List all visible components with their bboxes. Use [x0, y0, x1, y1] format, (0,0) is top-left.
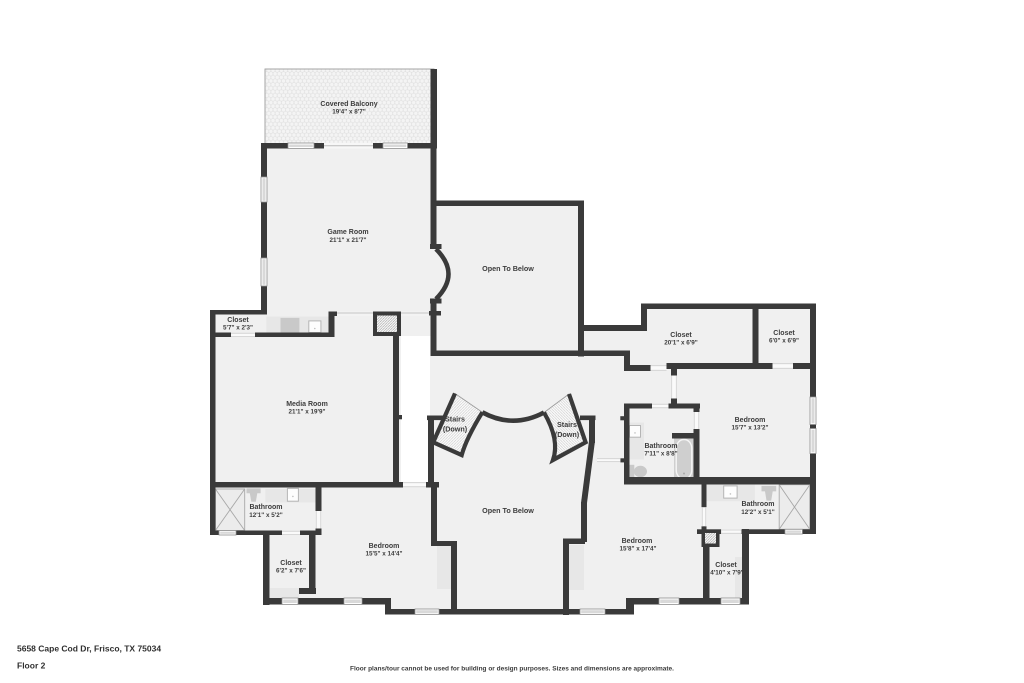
svg-text:12'2" x 5'1": 12'2" x 5'1" — [741, 509, 774, 516]
svg-text:Bathroom: Bathroom — [741, 501, 774, 508]
svg-text:15'8" x 17'4": 15'8" x 17'4" — [620, 546, 657, 553]
svg-text:Closet: Closet — [227, 317, 249, 324]
svg-text:Bedroom: Bedroom — [735, 417, 766, 424]
svg-text:15'5" x 14'4": 15'5" x 14'4" — [366, 551, 403, 558]
svg-text:Media Room: Media Room — [286, 401, 328, 408]
svg-text:Closet: Closet — [773, 330, 795, 337]
svg-text:Bedroom: Bedroom — [622, 538, 653, 545]
svg-text:Bedroom: Bedroom — [369, 543, 400, 550]
svg-text:5'7" x 2'3": 5'7" x 2'3" — [223, 325, 253, 332]
svg-text:Bathroom: Bathroom — [644, 443, 677, 450]
svg-text:6'2" x 7'6": 6'2" x 7'6" — [276, 568, 306, 575]
svg-text:Open To Below: Open To Below — [482, 506, 534, 515]
svg-text:Stairs: Stairs — [445, 415, 465, 424]
svg-text:Open To Below: Open To Below — [482, 264, 534, 273]
svg-text:12'1" x 5'2": 12'1" x 5'2" — [249, 512, 282, 519]
svg-text:Game Room: Game Room — [327, 229, 368, 236]
svg-text:5658 Cape Cod Dr, Frisco, TX 7: 5658 Cape Cod Dr, Frisco, TX 75034 — [17, 644, 161, 654]
svg-text:(Down): (Down) — [555, 430, 580, 439]
svg-text:Floor 2: Floor 2 — [17, 661, 46, 671]
svg-text:Covered Balcony: Covered Balcony — [320, 101, 377, 108]
svg-text:Floor plans/tour cannot be use: Floor plans/tour cannot be used for buil… — [350, 666, 674, 673]
svg-text:6'0" x 6'9": 6'0" x 6'9" — [769, 338, 799, 345]
svg-text:Closet: Closet — [670, 332, 692, 339]
svg-text:20'1" x 6'9": 20'1" x 6'9" — [664, 340, 697, 347]
svg-text:21'1" x 19'9": 21'1" x 19'9" — [289, 409, 326, 416]
svg-text:19'4" x 8'7": 19'4" x 8'7" — [332, 109, 365, 116]
svg-text:Closet: Closet — [280, 560, 302, 567]
svg-text:7'11" x 8'8": 7'11" x 8'8" — [644, 451, 677, 458]
svg-text:Closet: Closet — [715, 562, 737, 569]
svg-text:Bathroom: Bathroom — [249, 504, 282, 511]
svg-text:(Down): (Down) — [443, 425, 468, 434]
svg-text:4'10" x 7'9": 4'10" x 7'9" — [710, 570, 743, 577]
svg-text:21'1" x 21'7": 21'1" x 21'7" — [330, 237, 367, 244]
svg-text:Stairs: Stairs — [557, 420, 577, 429]
svg-text:15'7" x 13'2": 15'7" x 13'2" — [732, 425, 769, 432]
